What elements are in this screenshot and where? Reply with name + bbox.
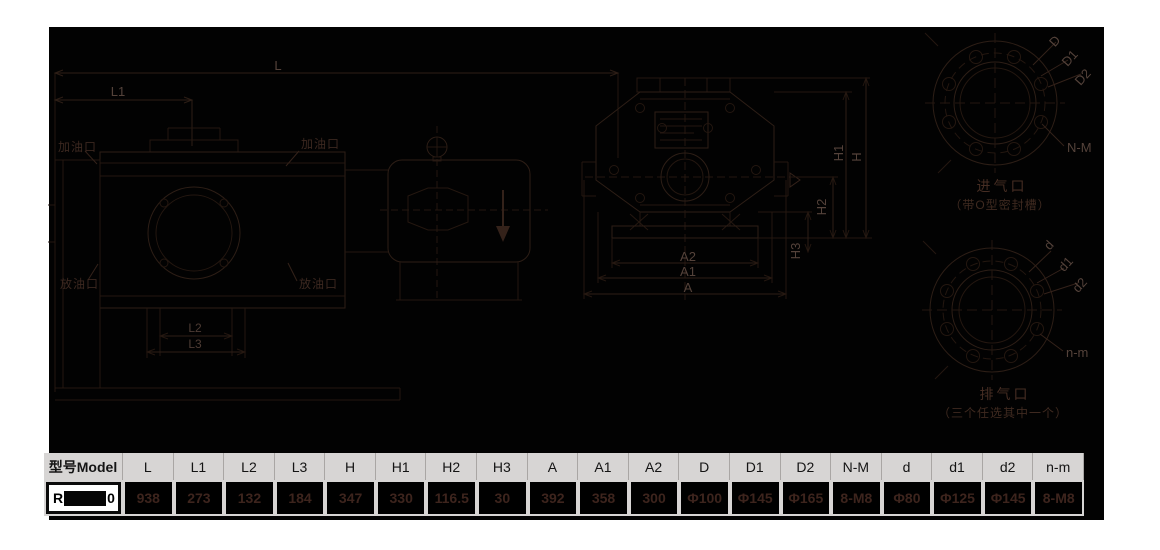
table-value-H: 347 bbox=[325, 480, 376, 516]
table-value-N-M: 8-M8 bbox=[831, 480, 882, 516]
model-suffix: 0 bbox=[107, 490, 115, 506]
table-header-d: d bbox=[882, 453, 933, 480]
table-header-A2: A2 bbox=[629, 453, 680, 480]
table-header-d2: d2 bbox=[983, 453, 1034, 480]
model-prefix: R bbox=[53, 490, 63, 506]
table-value-D1: Φ145 bbox=[730, 480, 781, 516]
table-value-H2: 116.5 bbox=[426, 480, 477, 516]
table-header-A: A bbox=[528, 453, 579, 480]
table-value-L1: 273 bbox=[174, 480, 225, 516]
table-value-H1: 330 bbox=[376, 480, 427, 516]
table-header-D2: D2 bbox=[781, 453, 832, 480]
model-cell: R 0 bbox=[44, 480, 123, 516]
table-header-D1: D1 bbox=[730, 453, 781, 480]
model-column-header: 型号Model bbox=[44, 453, 123, 480]
table-value-d1: Φ125 bbox=[932, 480, 983, 516]
table-header-d1: d1 bbox=[932, 453, 983, 480]
table-header-row: 型号Model LL1L2L3HH1H2H3AA1A2DD1D2N-Mdd1d2… bbox=[44, 453, 1084, 480]
table-value-A2: 300 bbox=[629, 480, 680, 516]
table-value-row: R 0 938273132184347330116.530392358300Φ1… bbox=[44, 480, 1084, 516]
table-value-d2: Φ145 bbox=[983, 480, 1034, 516]
table-header-L1: L1 bbox=[174, 453, 225, 480]
table-value-A: 392 bbox=[528, 480, 579, 516]
table-header-H: H bbox=[325, 453, 376, 480]
table-header-n-m: n-m bbox=[1033, 453, 1084, 480]
model-value: R 0 bbox=[46, 482, 121, 514]
table-value-A1: 358 bbox=[578, 480, 629, 516]
dimension-table: 型号Model LL1L2L3HH1H2H3AA1A2DD1D2N-Mdd1d2… bbox=[44, 453, 1084, 516]
table-value-L3: 184 bbox=[275, 480, 326, 516]
table-header-H2: H2 bbox=[426, 453, 477, 480]
table-value-L: 938 bbox=[123, 480, 174, 516]
table-header-D: D bbox=[679, 453, 730, 480]
table-header-L3: L3 bbox=[275, 453, 326, 480]
table-value-d: Φ80 bbox=[882, 480, 933, 516]
model-redaction bbox=[64, 491, 106, 506]
table-value-L2: 132 bbox=[224, 480, 275, 516]
table-header-A1: A1 bbox=[578, 453, 629, 480]
table-header-N-M: N-M bbox=[831, 453, 882, 480]
table-value-n-m: 8-M8 bbox=[1033, 480, 1084, 516]
table-header-L: L bbox=[123, 453, 174, 480]
table-value-D: Φ100 bbox=[679, 480, 730, 516]
table-header-L2: L2 bbox=[224, 453, 275, 480]
table-value-D2: Φ165 bbox=[781, 480, 832, 516]
table-header-H1: H1 bbox=[376, 453, 427, 480]
drawing-canvas bbox=[49, 27, 1104, 520]
table-header-H3: H3 bbox=[477, 453, 528, 480]
table-value-H3: 30 bbox=[477, 480, 528, 516]
